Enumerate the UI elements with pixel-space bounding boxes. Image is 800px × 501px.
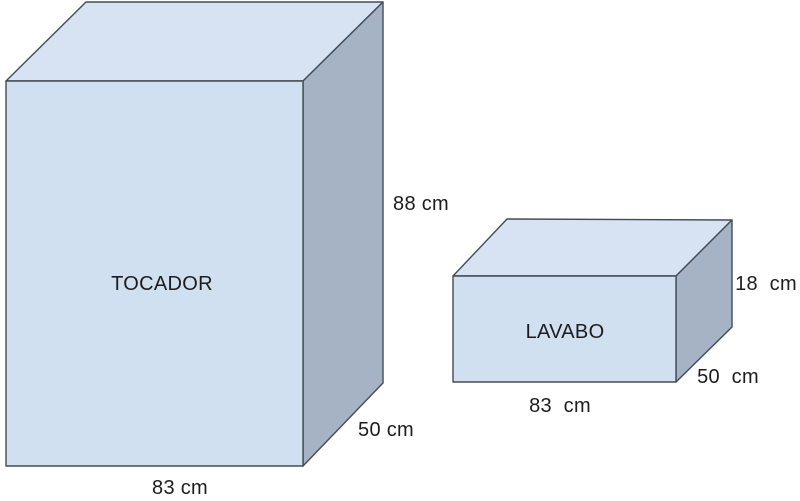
tocador-width-label: 83 cm <box>152 478 208 498</box>
lavabo-width-label: 83 cm <box>529 396 591 416</box>
lavabo-prism <box>453 219 732 382</box>
tocador-prism <box>6 2 383 466</box>
tocador-height-label: 88 cm <box>393 194 449 214</box>
tocador-name-label: TOCADOR <box>111 274 213 294</box>
box-volume-diagram: TOCADOR 88 cm 50 cm 83 cm LAVABO 18 cm 5… <box>0 0 800 501</box>
lavabo-depth-label: 50 cm <box>697 367 759 387</box>
tocador-side-face <box>303 2 383 466</box>
tocador-depth-label: 50 cm <box>358 420 414 440</box>
lavabo-name-label: LAVABO <box>526 322 605 342</box>
lavabo-height-label: 18 cm <box>735 274 797 294</box>
